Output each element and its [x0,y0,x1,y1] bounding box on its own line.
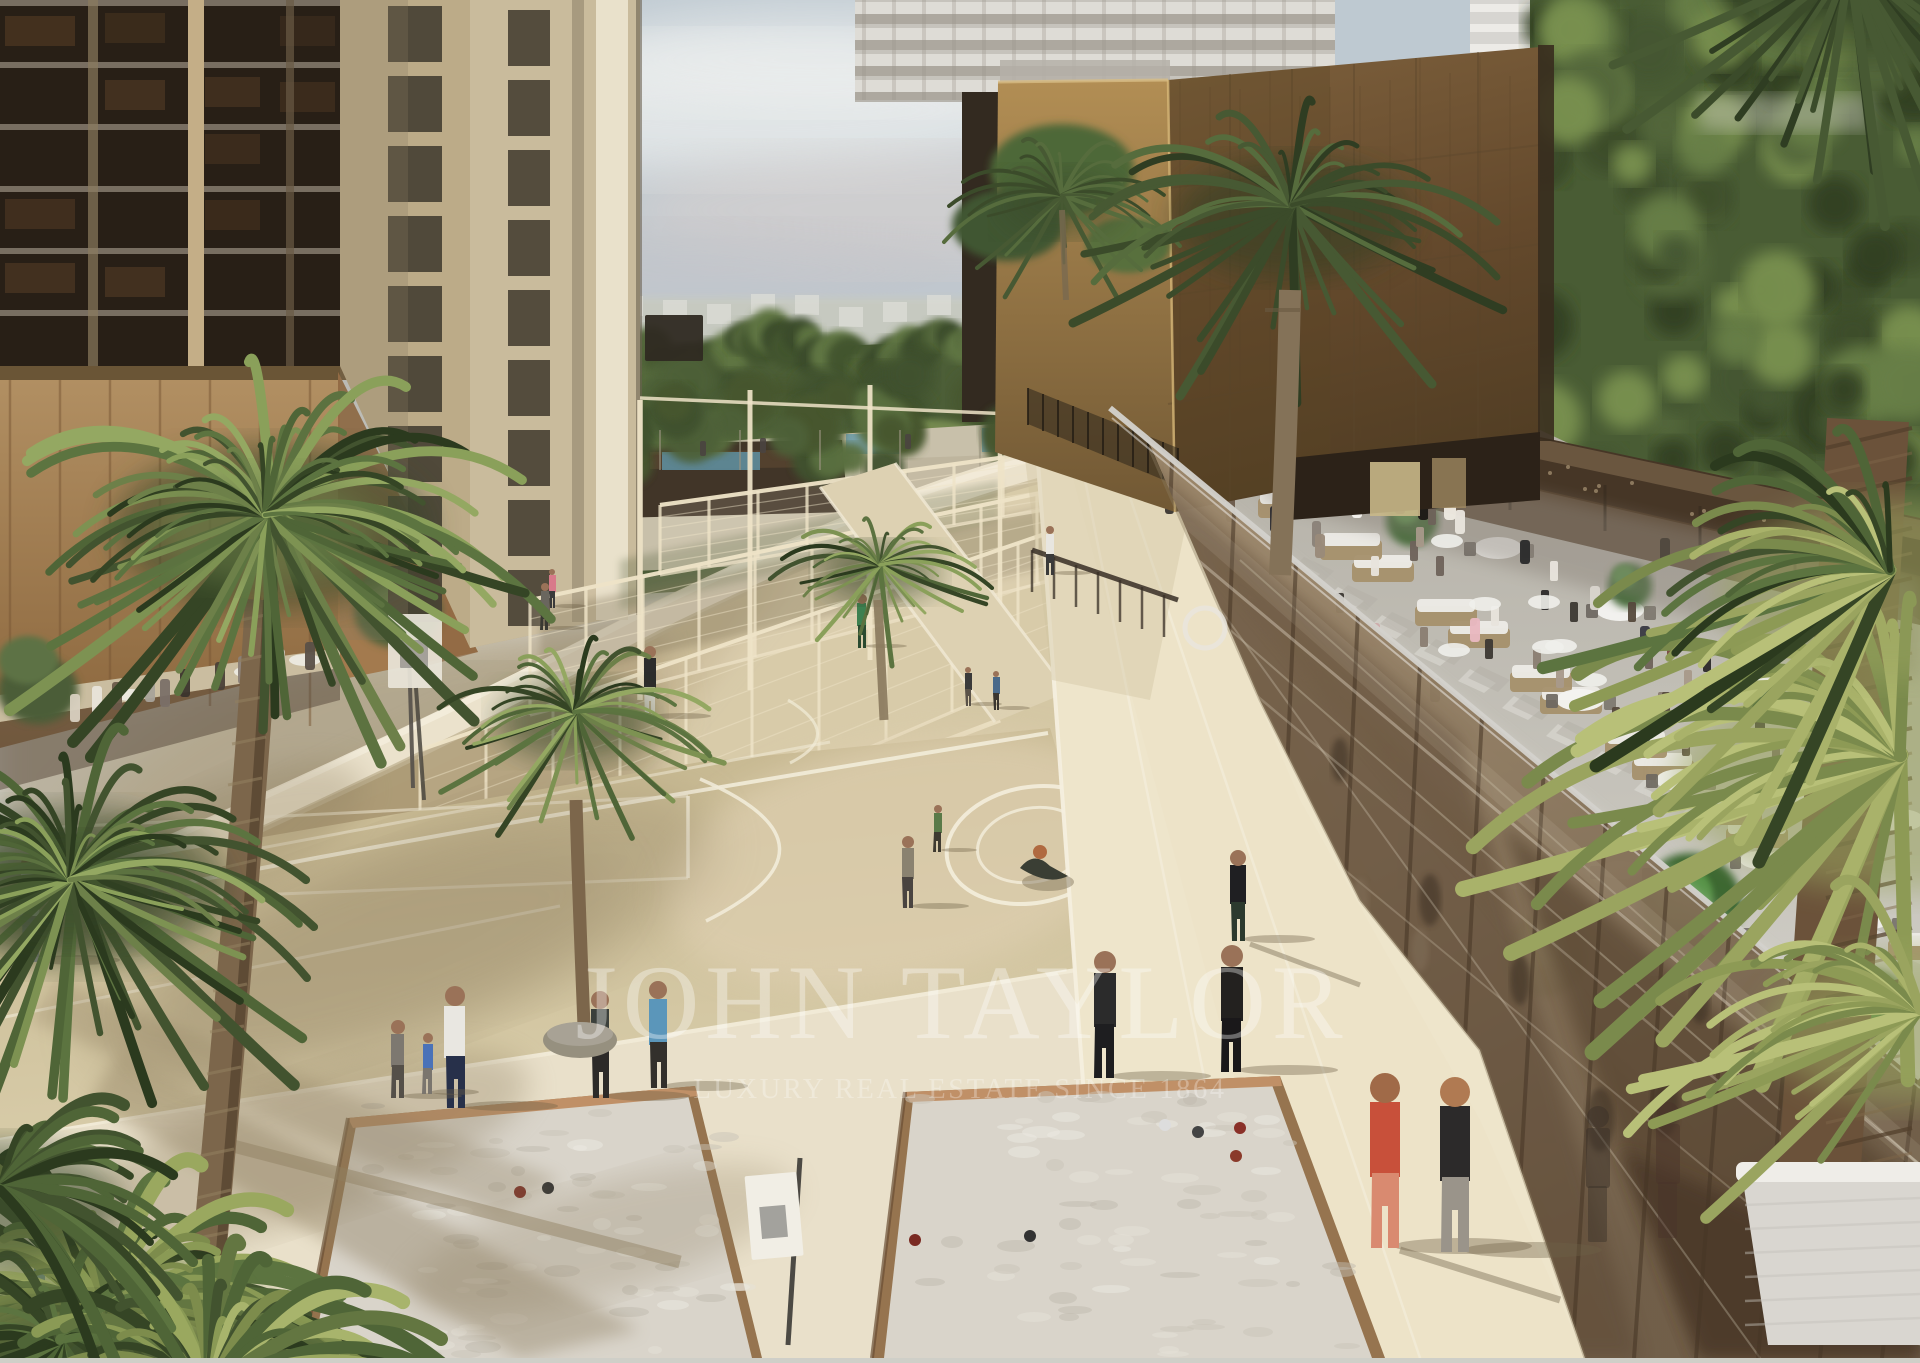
svg-text:LUXURY REAL ESTATE SINCE 1864: LUXURY REAL ESTATE SINCE 1864 [693,1074,1226,1105]
svg-text:JOHN TAYLOR: JOHN TAYLOR [575,944,1348,1061]
